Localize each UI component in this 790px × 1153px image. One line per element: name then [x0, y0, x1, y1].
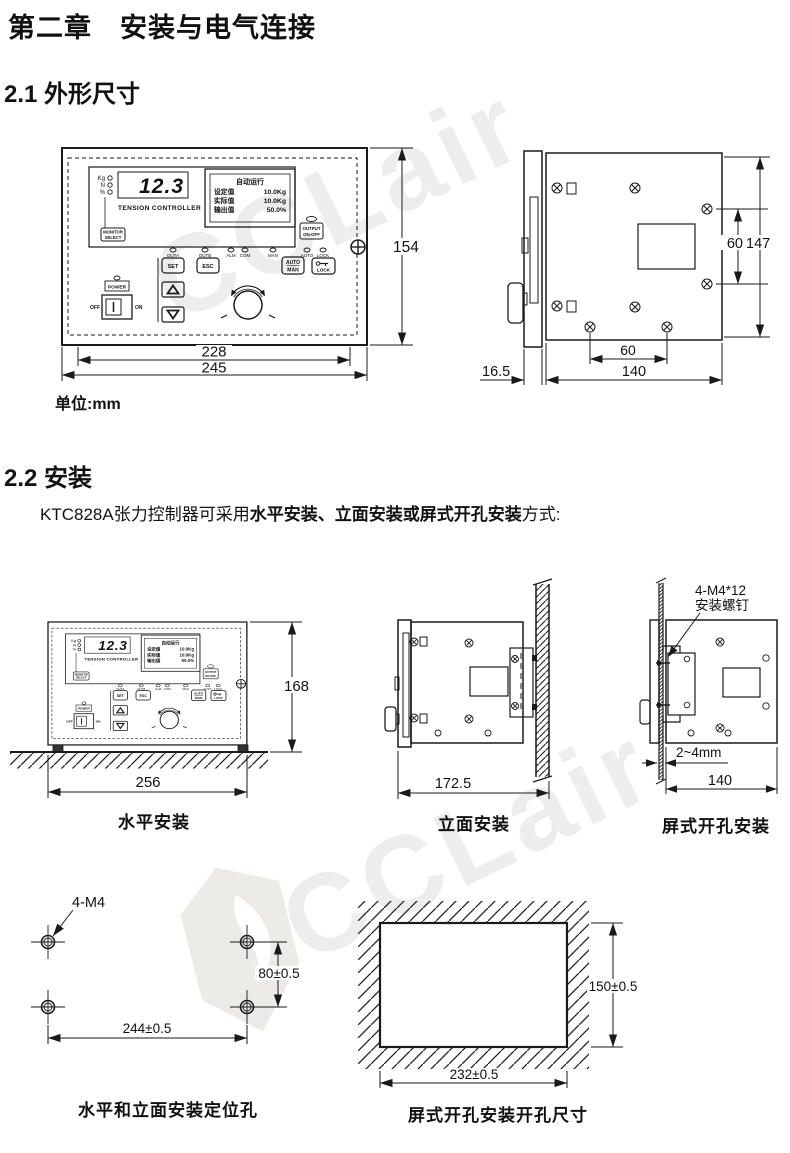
panel-mount-caption: 屏式开孔安装	[662, 812, 770, 837]
unit-indicator-leds: Kg N %	[98, 176, 113, 228]
display-value: 12.3	[139, 175, 184, 198]
wall	[533, 579, 552, 782]
output-label: OUTPUT	[302, 226, 320, 231]
horizontal-install-caption: 水平安装	[118, 808, 190, 833]
mounting-holes-drawing: 4-M4 80±0.5 244±0.5	[15, 880, 315, 1065]
auto-label: AUTO	[286, 260, 300, 266]
device-side	[385, 620, 537, 747]
dim-172-5: 172.5	[435, 776, 471, 792]
cutout-size-drawing: 150±0.5 232±0.5	[345, 895, 645, 1095]
unit-note: 单位:mm	[55, 390, 121, 414]
set-label: SET	[168, 264, 179, 270]
lcd-info-box: 自动运行 设定值 10.0Kg 实际值 10.0Kg 输出值 50.0%	[205, 169, 295, 227]
dim-232: 232±0.5	[450, 1067, 499, 1082]
side-knob	[385, 707, 396, 731]
intro-suffix: 方式:	[522, 505, 561, 524]
select-label: SELECT	[105, 235, 122, 240]
dim-150: 150±0.5	[589, 979, 638, 994]
led-label: OUTB	[199, 253, 212, 258]
unit-led-label: %	[100, 190, 106, 196]
esc-label: ESC	[202, 264, 213, 270]
led-label: ALM	[226, 253, 236, 258]
led-label: LOCK	[317, 253, 329, 258]
holes-caption: 水平和立面安装定位孔	[78, 1096, 258, 1121]
status-led-row: OUTA OUTB ALM COM MAN AUTO LOCK	[167, 248, 329, 258]
side-view-drawing: 60 147 60 140 16.5	[470, 132, 790, 397]
section-2-1-title: 2.1 外形尺寸	[4, 74, 140, 109]
output-onoff-button: OUTPUT ON-OFF	[300, 217, 323, 240]
controller-front-panel: Kg N % 12.3 TENSION CONTROLLER MONITOR S…	[62, 148, 367, 345]
cutout-rectangle	[380, 923, 567, 1047]
key-icon	[316, 262, 328, 266]
on-label: ON	[135, 305, 143, 311]
lcd-row-value: 10.0Kg	[264, 198, 286, 205]
vertical-dimensions	[398, 751, 549, 799]
bezel-screw-icon	[351, 240, 365, 254]
page: CCLair CCLair 第二章 安装与电气连接 2.1 外形尺寸 Kg N …	[0, 0, 790, 1153]
side-view-body	[508, 151, 722, 347]
dim-140: 140	[708, 773, 732, 789]
screw-note-2: 安装螺钉	[695, 598, 749, 613]
screw-icons	[410, 638, 491, 736]
lcd-row-label: 设定值	[214, 187, 235, 196]
dim-16-5: 16.5	[482, 364, 510, 380]
auto-man-button: AUTO MAN	[282, 257, 304, 274]
cutout-caption: 屏式开孔安装开孔尺寸	[408, 1101, 588, 1126]
section-2-2-title: 2.2 安装	[4, 458, 92, 493]
led-label: MAN	[268, 253, 278, 258]
lcd-row-value: 10.0Kg	[264, 189, 286, 196]
intro-bold: 水平安装、立面安装或屏式开孔安装	[250, 505, 522, 524]
horizontal-install-drawing: 168 256	[10, 600, 310, 805]
hole-markers	[31, 925, 264, 1024]
led-label: OUTA	[167, 253, 179, 258]
hole-icon	[31, 990, 65, 1024]
dim-140: 140	[622, 364, 646, 380]
monitor-label: MONITOR	[103, 230, 123, 235]
dim-60-horizontal: 60	[620, 342, 636, 358]
hole-icon	[230, 990, 264, 1024]
chapter-title: 第二章 安装与电气连接	[8, 6, 316, 45]
dim-80: 80±0.5	[258, 966, 299, 981]
tension-knob	[221, 286, 275, 319]
side-knob	[508, 283, 523, 323]
intro-prefix: KTC828A张力控制器可采用	[40, 505, 250, 524]
lock-button: LOCK	[312, 258, 335, 274]
lock-label: LOCK	[317, 268, 331, 273]
hole-icon	[230, 925, 264, 959]
front-view-drawing: Kg N % 12.3 TENSION CONTROLLER MONITOR S…	[55, 140, 420, 390]
lcd-title: 自动运行	[236, 177, 264, 186]
terminal-cutout	[638, 224, 695, 269]
unit-led-label: Kg	[98, 176, 105, 182]
screw-note-1: 4-M4*12	[695, 583, 746, 598]
monitor-select-button: MONITOR SELECT	[101, 228, 125, 241]
dim-256: 256	[135, 774, 160, 791]
dim-228: 228	[201, 344, 226, 361]
ground	[10, 745, 268, 769]
hole-icon	[31, 925, 65, 959]
vertical-install-drawing: 172.5	[383, 575, 558, 805]
brand-label: TENSION CONTROLLER	[118, 205, 201, 212]
off-label: OFF	[90, 305, 100, 311]
screw-icons	[688, 638, 769, 736]
led-label: COM	[240, 253, 251, 258]
dim-147: 147	[746, 236, 770, 252]
power-label: POWER	[108, 285, 127, 291]
dim-245: 245	[201, 360, 226, 377]
power-switch: POWER OFF ON	[90, 276, 143, 319]
panel-mount-drawing: 4-M4*12 安装螺钉 2~4mm 140	[628, 575, 788, 810]
lcd-row-value: 50.0%	[267, 207, 286, 214]
intro-paragraph: KTC828A张力控制器可采用水平安装、立面安装或屏式开孔安装方式:	[40, 500, 560, 525]
side-knob	[640, 700, 650, 724]
man-label: MAN	[287, 268, 299, 274]
dim-60-vertical: 60	[727, 236, 743, 252]
vertical-install-caption: 立面安装	[438, 810, 510, 835]
up-button	[162, 282, 184, 297]
onoff-label: ON-OFF	[303, 232, 320, 237]
down-button	[162, 307, 184, 322]
dim-168: 168	[284, 678, 309, 695]
thin-panel	[656, 578, 666, 784]
unit-led-label: N	[101, 183, 105, 189]
lcd-row-label: 实际值	[214, 196, 235, 205]
dim-154: 154	[393, 239, 419, 256]
lcd-row-label: 输出值	[214, 205, 235, 214]
dim-gap: 2~4mm	[676, 745, 721, 760]
holes-label: 4-M4	[72, 895, 105, 911]
dim-244: 244±0.5	[123, 1021, 172, 1036]
